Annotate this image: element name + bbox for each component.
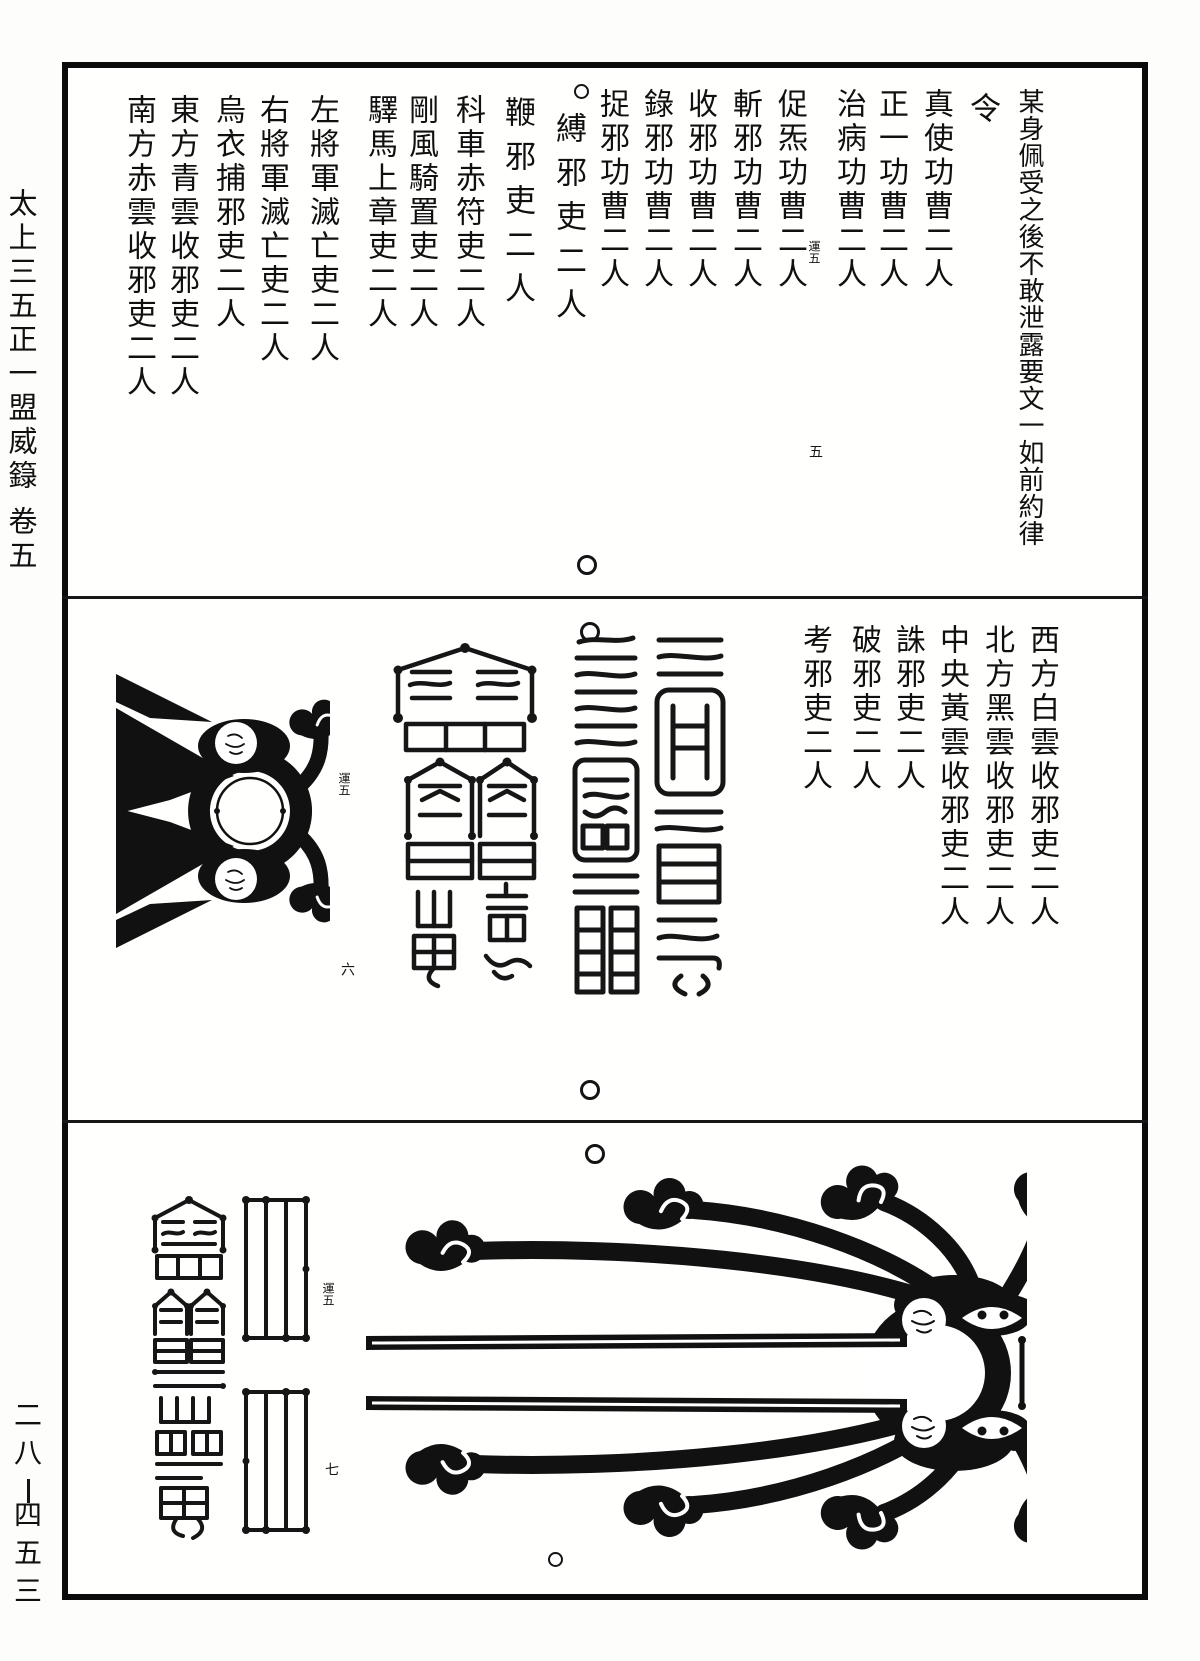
text-column: 驛馬上章吏二人 bbox=[364, 94, 394, 332]
folio-leaf-number: 七 bbox=[324, 1462, 338, 1476]
catalog-number-top: 二八 bbox=[12, 1400, 40, 1476]
text-column: 令 bbox=[966, 92, 997, 136]
text-column: 西方白雲收邪吏二人 bbox=[1026, 624, 1056, 930]
folio-leaf-number: 五 bbox=[808, 444, 822, 458]
text-column: 破邪吏二人 bbox=[848, 624, 878, 794]
text-column: 斬邪功曹二人 bbox=[729, 88, 759, 292]
scanned-page: 太上三五正一盟威籙 卷五 二八 四五三 某身佩受之後不敢泄露要文一如前約律 令 … bbox=[0, 0, 1200, 1661]
text-column: 烏衣捕邪吏二人 bbox=[212, 94, 242, 332]
serpentine-seal-talisman-figure bbox=[563, 628, 731, 1004]
pagoda-seal-talisman-figure bbox=[386, 638, 544, 994]
text-column: 促炁功曹二人 bbox=[774, 88, 804, 292]
line-grid-talisman-figure bbox=[240, 1192, 312, 1346]
text-column: 東方青雲收邪吏二人 bbox=[166, 94, 196, 400]
text-column: 正一功曹二人 bbox=[875, 88, 905, 292]
large-cloud-scroll-emblem-figure bbox=[362, 1150, 1027, 1565]
text-column: 收邪功曹二人 bbox=[684, 88, 714, 292]
text-column: 右將軍滅亡吏二人 bbox=[256, 94, 286, 366]
text-column: 真使功曹二人 bbox=[920, 88, 950, 292]
text-column: 北方黑雲收邪吏二人 bbox=[981, 624, 1011, 930]
text-column: 鞭邪吏二人 bbox=[501, 96, 532, 316]
text-column: 捉邪功曹二人 bbox=[596, 88, 626, 292]
folio-leaf-number: 六 bbox=[340, 962, 354, 976]
text-column: 考邪吏二人 bbox=[799, 624, 829, 794]
line-grid-talisman-figure bbox=[240, 1384, 312, 1538]
fisheye-mark bbox=[574, 84, 589, 99]
text-column: 錄邪功曹二人 bbox=[640, 88, 670, 292]
fisheye-mark bbox=[577, 555, 597, 575]
spine-volume: 卷五 bbox=[6, 506, 35, 574]
folio-label: 運五 bbox=[808, 240, 820, 264]
tall-pagoda-seal-talisman-figure bbox=[147, 1192, 231, 1554]
cloud-scroll-ring-emblem-figure bbox=[116, 668, 330, 954]
text-column: 某身佩受之後不敢泄露要文一如前約律 bbox=[1016, 88, 1042, 547]
section-divider bbox=[62, 1120, 1148, 1123]
catalog-number-bottom: 四五三 bbox=[12, 1500, 40, 1614]
folio-label: 運五 bbox=[338, 772, 350, 796]
text-column: 中央黃雲收邪吏二人 bbox=[936, 624, 966, 930]
fisheye-mark bbox=[580, 1080, 600, 1100]
folio-label: 運五 bbox=[322, 1282, 334, 1306]
text-column: 誅邪吏二人 bbox=[892, 624, 922, 794]
text-column: 治病功曹二人 bbox=[833, 88, 863, 292]
text-column: 科車赤符吏二人 bbox=[452, 94, 482, 332]
section-divider bbox=[62, 596, 1148, 599]
text-column: 南方赤雲收邪吏二人 bbox=[123, 94, 153, 400]
text-column: 縛邪吏二人 bbox=[552, 112, 583, 332]
spine-title: 太上三五正一盟威籙 bbox=[6, 188, 35, 494]
text-column: 剛風騎置吏二人 bbox=[405, 94, 435, 332]
text-column: 左將軍滅亡吏二人 bbox=[306, 94, 336, 366]
